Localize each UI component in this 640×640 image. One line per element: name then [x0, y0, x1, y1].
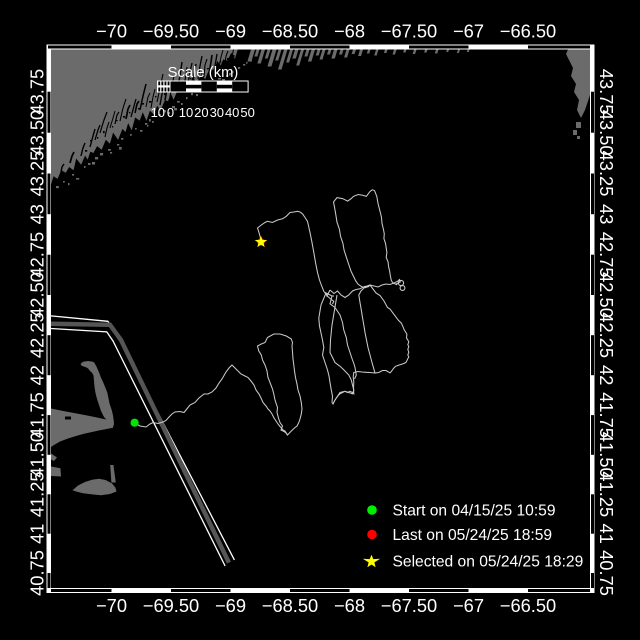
svg-text:−66.50: −66.50 [500, 21, 556, 42]
svg-text:42.50: 42.50 [596, 272, 617, 318]
svg-text:Scale (km): Scale (km) [168, 65, 239, 81]
svg-text:Last on 05/24/25 18:59: Last on 05/24/25 18:59 [393, 527, 553, 544]
svg-text:42.25: 42.25 [27, 312, 48, 358]
svg-text:−68.50: −68.50 [262, 21, 318, 42]
svg-text:41.25: 41.25 [27, 471, 48, 517]
svg-text:Start on 04/15/25 10:59: Start on 04/15/25 10:59 [393, 503, 556, 520]
svg-text:−68: −68 [334, 21, 365, 42]
svg-text:41: 41 [27, 524, 48, 544]
svg-text:41.75: 41.75 [27, 392, 48, 438]
svg-text:42: 42 [27, 365, 48, 385]
svg-text:42.75: 42.75 [596, 232, 617, 278]
svg-text:−67: −67 [453, 595, 484, 616]
svg-text:30: 30 [210, 105, 224, 120]
svg-text:43: 43 [27, 204, 48, 224]
svg-text:10: 10 [179, 105, 193, 120]
svg-text:50: 50 [240, 105, 254, 120]
svg-text:43.50: 43.50 [596, 110, 617, 156]
svg-text:43: 43 [596, 204, 617, 224]
svg-text:10: 10 [151, 105, 165, 120]
svg-text:41: 41 [596, 524, 617, 544]
svg-text:42.50: 42.50 [27, 272, 48, 318]
svg-text:−69.50: −69.50 [143, 595, 199, 616]
svg-text:42: 42 [596, 365, 617, 385]
svg-text:−69: −69 [215, 21, 246, 42]
svg-text:43.25: 43.25 [596, 151, 617, 197]
svg-text:−66.50: −66.50 [500, 595, 556, 616]
svg-text:40: 40 [225, 105, 239, 120]
svg-text:Selected on 05/24/25 18:29: Selected on 05/24/25 18:29 [393, 554, 584, 571]
svg-text:40.75: 40.75 [27, 550, 48, 596]
svg-text:−67: −67 [453, 21, 484, 42]
svg-text:−70: −70 [96, 21, 127, 42]
svg-text:41.25: 41.25 [596, 471, 617, 517]
svg-text:−69: −69 [215, 595, 246, 616]
svg-text:42.75: 42.75 [27, 232, 48, 278]
svg-text:−67.50: −67.50 [381, 21, 437, 42]
svg-text:−68.50: −68.50 [262, 595, 318, 616]
svg-text:40.75: 40.75 [596, 550, 617, 596]
svg-text:43.25: 43.25 [27, 151, 48, 197]
svg-text:43.75: 43.75 [27, 69, 48, 115]
svg-text:−70: −70 [96, 595, 127, 616]
svg-text:42.25: 42.25 [596, 312, 617, 358]
svg-text:−68: −68 [334, 595, 365, 616]
svg-text:20: 20 [194, 105, 208, 120]
svg-text:0: 0 [167, 105, 174, 120]
svg-text:−69.50: −69.50 [143, 21, 199, 42]
svg-text:43.75: 43.75 [596, 69, 617, 115]
svg-text:43.50: 43.50 [27, 110, 48, 156]
svg-text:−67.50: −67.50 [381, 595, 437, 616]
svg-text:41.50: 41.50 [27, 432, 48, 478]
